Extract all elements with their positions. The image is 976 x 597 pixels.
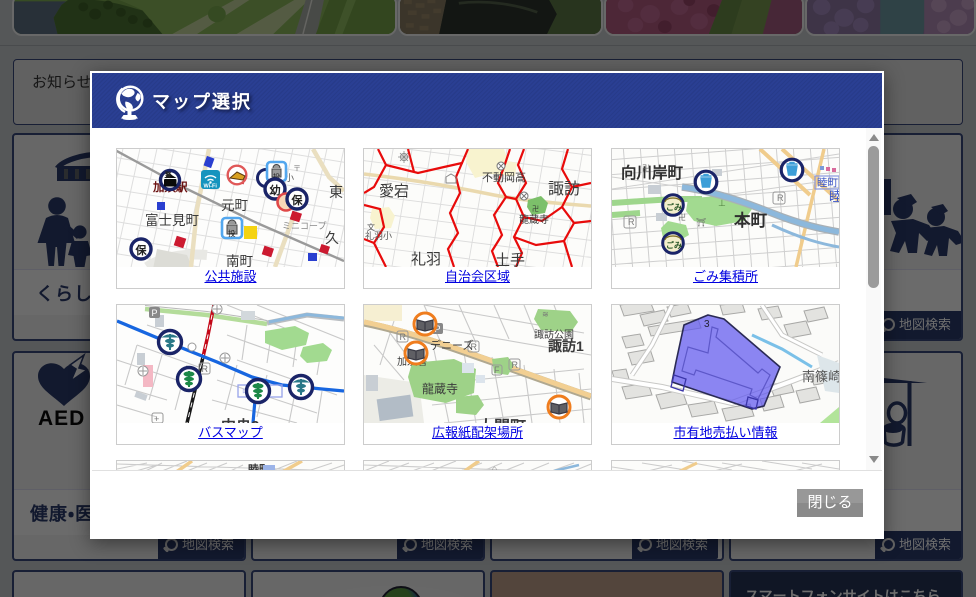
svg-text:卍: 卍 (642, 164, 650, 173)
svg-text:元町: 元町 (221, 198, 248, 213)
svg-text:礼羽: 礼羽 (411, 251, 441, 267)
svg-text:卍: 卍 (532, 205, 539, 213)
svg-text:R: R (777, 193, 784, 203)
svg-text:文: 文 (367, 222, 375, 232)
svg-text:Wi-Fi: Wi-Fi (204, 184, 218, 190)
svg-text:ミニコープ: ミニコープ (282, 221, 326, 231)
svg-text:デニーズ: デニーズ (430, 338, 473, 352)
svg-text:本町: 本町 (733, 210, 768, 230)
svg-text:保: 保 (291, 193, 304, 207)
svg-text:P: P (152, 308, 158, 318)
svg-text:R: R (202, 364, 209, 374)
svg-text:⊥: ⊥ (718, 198, 726, 208)
svg-text:諏訪: 諏訪 (548, 180, 580, 198)
svg-text:龍蔵寺: 龍蔵寺 (422, 382, 458, 396)
svg-text:ごみ: ごみ (666, 202, 682, 212)
svg-text:富士見町: 富士見町 (145, 213, 199, 228)
svg-text:土手: 土手 (495, 252, 525, 267)
svg-text:幼: 幼 (270, 183, 281, 197)
svg-text:R: R (628, 217, 635, 227)
svg-text:≋: ≋ (542, 310, 549, 319)
svg-text:睦町: 睦町 (817, 176, 838, 189)
svg-text:ごみ: ごみ (666, 240, 682, 250)
svg-text:諏訪1: 諏訪1 (548, 338, 584, 354)
svg-text:愛宕: 愛宕 (379, 183, 409, 200)
svg-text:東: 東 (329, 184, 343, 200)
svg-text:睦: 睦 (829, 189, 839, 204)
svg-text:F: F (494, 365, 500, 375)
svg-text:R: R (400, 332, 407, 342)
svg-text:投: 投 (228, 228, 236, 238)
svg-text:⛩: ⛩ (696, 218, 706, 227)
svg-text:南篠崎: 南篠崎 (802, 369, 839, 384)
svg-text:警: 警 (164, 170, 172, 179)
svg-text:不動岡高: 不動岡高 (482, 170, 526, 184)
svg-text:〒: 〒 (293, 164, 301, 173)
svg-text:保: 保 (135, 243, 148, 257)
svg-text:3: 3 (704, 319, 710, 330)
svg-text:向川岸町: 向川岸町 (621, 163, 684, 182)
svg-text:久: 久 (325, 230, 339, 246)
svg-text:R: R (512, 360, 519, 370)
svg-text:龍蔵寺: 龍蔵寺 (519, 213, 549, 226)
